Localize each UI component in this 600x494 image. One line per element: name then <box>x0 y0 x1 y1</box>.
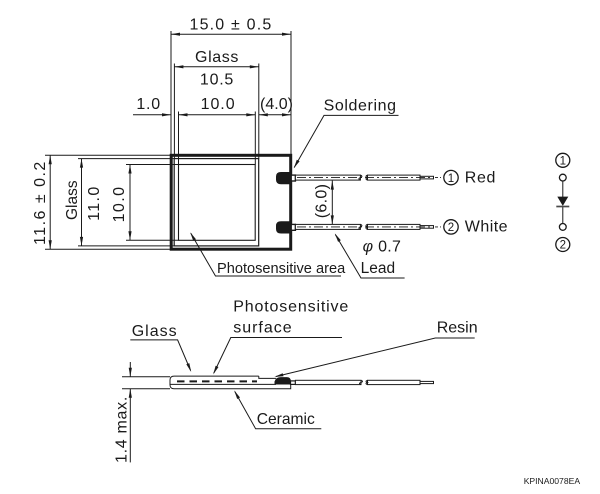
svg-text:10.0: 10.0 <box>111 186 128 223</box>
svg-text:1.4 max.: 1.4 max. <box>114 396 131 463</box>
svg-text:Glass: Glass <box>195 49 239 66</box>
svg-text:15.0 ± 0.5: 15.0 ± 0.5 <box>189 17 272 34</box>
svg-text:(6.0): (6.0) <box>314 184 331 218</box>
svg-text:Photosensitive: Photosensitive <box>233 298 349 315</box>
svg-text:Lead: Lead <box>361 260 395 277</box>
svg-text:11.6 ± 0.2: 11.6 ± 0.2 <box>32 160 49 245</box>
svg-text:KPINA0078EA: KPINA0078EA <box>524 476 581 486</box>
svg-text:(4.0): (4.0) <box>260 96 293 113</box>
svg-text:Glass: Glass <box>132 323 178 340</box>
svg-text:2: 2 <box>448 222 454 234</box>
svg-text:2: 2 <box>560 240 566 252</box>
svg-text:φ 0.7: φ 0.7 <box>363 239 402 256</box>
svg-text:Red: Red <box>465 170 496 187</box>
svg-text:11.0: 11.0 <box>86 185 103 221</box>
svg-text:surface: surface <box>233 319 292 336</box>
svg-text:1.0: 1.0 <box>136 96 161 113</box>
svg-text:Glass: Glass <box>64 180 81 220</box>
svg-text:10.5: 10.5 <box>200 72 234 89</box>
svg-text:Photosensitive area: Photosensitive area <box>217 261 346 277</box>
svg-text:Resin: Resin <box>437 320 478 337</box>
svg-text:White: White <box>465 219 508 236</box>
svg-text:1: 1 <box>560 156 566 168</box>
svg-text:Ceramic: Ceramic <box>257 411 315 428</box>
svg-text:10.0: 10.0 <box>201 96 236 113</box>
svg-text:1: 1 <box>448 173 454 185</box>
svg-text:Soldering: Soldering <box>324 98 397 115</box>
